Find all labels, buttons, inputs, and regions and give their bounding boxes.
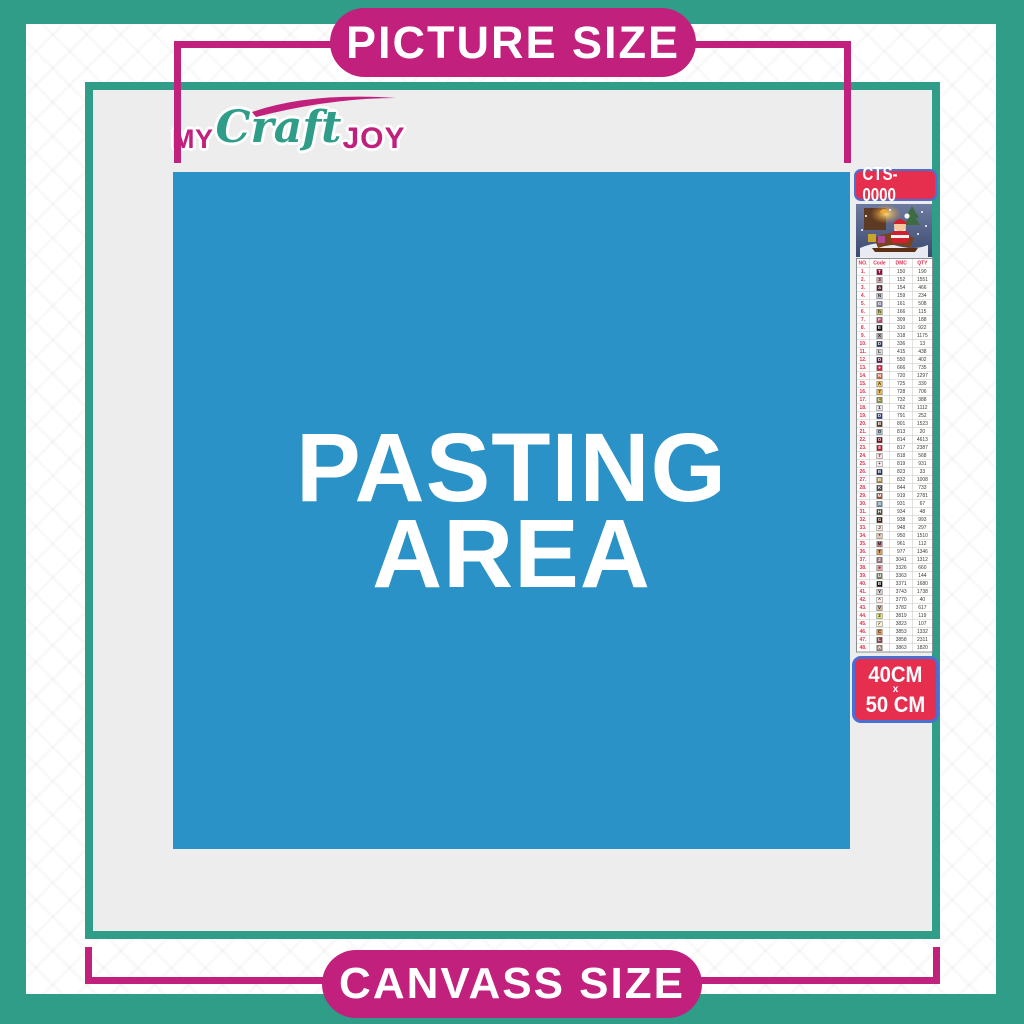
- qty-cell: 107: [913, 620, 932, 628]
- row-number: 5.: [857, 300, 869, 308]
- row-number: 37.: [857, 556, 869, 564]
- qty-cell: 112: [913, 540, 932, 548]
- row-number: 35.: [857, 540, 869, 548]
- dmc-cell: 166: [890, 308, 913, 316]
- qty-cell: 1112: [913, 404, 932, 412]
- dmc-cell: 3326: [890, 564, 913, 572]
- table-row: 20.B8011523: [857, 420, 932, 428]
- dmc-cell: 3363: [890, 572, 913, 580]
- header-qty: QTY: [913, 259, 932, 268]
- row-number: 40.: [857, 580, 869, 588]
- row-number: 27.: [857, 476, 869, 484]
- dmc-cell: 3853: [890, 628, 913, 636]
- code-cell: D: [869, 340, 890, 348]
- color-chip: T: [876, 269, 882, 275]
- table-row: 45.✓3823107: [857, 620, 932, 628]
- row-number: 3.: [857, 284, 869, 292]
- row-number: 9.: [857, 332, 869, 340]
- color-chip: A: [876, 381, 882, 387]
- header-no: NO.: [857, 259, 869, 268]
- color-chip: K: [876, 485, 882, 491]
- row-number: 38.: [857, 564, 869, 572]
- dmc-color-table: NO. Code DMC QTY 1.T1501902.315215513.a1…: [856, 258, 1010, 1024]
- color-chip: B: [876, 469, 882, 475]
- row-number: 21.: [857, 428, 869, 436]
- qty-cell: 297: [913, 524, 932, 532]
- table-row: 40.B33711680: [857, 580, 932, 588]
- color-chip: h: [876, 309, 882, 315]
- qty-cell: 735: [913, 364, 932, 372]
- table-row: 28.K844733: [857, 484, 932, 492]
- dmc-cell: 801: [890, 420, 913, 428]
- dmc-table-body: 1.T1501902.315215513.a1544664.N1592345.G…: [857, 268, 932, 652]
- color-chip: a: [876, 285, 882, 291]
- color-chip: J: [876, 525, 882, 531]
- table-row: 38.e3326660: [857, 564, 932, 572]
- dmc-cell: 791: [890, 412, 913, 420]
- color-chip: L: [876, 349, 882, 355]
- dmc-cell: 823: [890, 468, 913, 476]
- row-number: 30.: [857, 500, 869, 508]
- code-cell: A: [869, 380, 890, 388]
- qty-cell: 119: [913, 612, 932, 620]
- code-cell: F: [869, 316, 890, 324]
- row-number: 29.: [857, 492, 869, 500]
- dmc-cell: 318: [890, 332, 913, 340]
- code-cell: L: [869, 348, 890, 356]
- table-row: 2.31521551: [857, 276, 932, 284]
- color-chip: M: [876, 493, 882, 499]
- row-number: 13.: [857, 364, 869, 372]
- brand-logo: MYCraftJOY: [172, 94, 402, 170]
- table-row: 18.17621112: [857, 404, 932, 412]
- color-chip: D: [876, 341, 882, 347]
- code-cell: L: [869, 636, 890, 644]
- code-cell: T: [869, 548, 890, 556]
- dmc-cell: 150: [890, 268, 913, 276]
- color-chip: H: [876, 509, 882, 515]
- dmc-cell: 3041: [890, 556, 913, 564]
- row-number: 23.: [857, 444, 869, 452]
- code-cell: Y: [869, 588, 890, 596]
- code-cell: G: [869, 300, 890, 308]
- dmc-cell: 818: [890, 452, 913, 460]
- code-cell: X: [869, 332, 890, 340]
- row-number: 8.: [857, 324, 869, 332]
- dmc-cell: 3858: [890, 636, 913, 644]
- dmc-cell: 817: [890, 444, 913, 452]
- code-cell: N: [869, 292, 890, 300]
- top-tail-left: [174, 41, 181, 163]
- row-number: 11.: [857, 348, 869, 356]
- dmc-cell: 732: [890, 396, 913, 404]
- table-row: 11.L415438: [857, 348, 932, 356]
- row-number: 22.: [857, 436, 869, 444]
- dmc-cell: 415: [890, 348, 913, 356]
- code-cell: C: [869, 628, 890, 636]
- code-cell: D: [869, 412, 890, 420]
- table-row: 21.O81320: [857, 428, 932, 436]
- row-number: 47.: [857, 636, 869, 644]
- header-code: Code: [869, 259, 890, 268]
- qty-cell: 4613: [913, 436, 932, 444]
- qty-cell: 1008: [913, 476, 932, 484]
- dmc-cell: 3823: [890, 620, 913, 628]
- table-row: 26.B82333: [857, 468, 932, 476]
- dmc-cell: 161: [890, 300, 913, 308]
- color-chip: 8: [876, 445, 882, 451]
- table-row: 16.7728706: [857, 388, 932, 396]
- table-row: 31.H93448: [857, 508, 932, 516]
- bottom-tail-right: [933, 947, 940, 984]
- row-number: 26.: [857, 468, 869, 476]
- top-line-left: [174, 41, 334, 48]
- row-number: 17.: [857, 396, 869, 404]
- poster-canvas: PICTURE SIZE CANVASS SIZE MYCraftJOY PAS…: [0, 0, 1024, 1024]
- code-cell: 3: [869, 276, 890, 284]
- qty-cell: 252: [913, 412, 932, 420]
- top-line-right: [692, 41, 851, 48]
- canvass-size-banner: CANVASS SIZE: [322, 950, 702, 1018]
- color-chip: M: [876, 541, 882, 547]
- qty-cell: 1523: [913, 420, 932, 428]
- dmc-cell: 950: [890, 532, 913, 540]
- picture-size-banner: PICTURE SIZE: [330, 8, 696, 77]
- table-row: 17.L732388: [857, 396, 932, 404]
- row-number: 4.: [857, 292, 869, 300]
- qty-cell: 2781: [913, 492, 932, 500]
- row-number: 28.: [857, 484, 869, 492]
- qty-cell: 33: [913, 468, 932, 476]
- row-number: 10.: [857, 340, 869, 348]
- color-chip: E: [876, 325, 882, 331]
- table-row: 13.●666735: [857, 364, 932, 372]
- code-cell: B: [869, 420, 890, 428]
- table-row: 25.+819931: [857, 460, 932, 468]
- row-number: 1.: [857, 268, 869, 276]
- dmc-cell: 814: [890, 436, 913, 444]
- bottom-tail-left: [85, 947, 92, 984]
- dmc-cell: 931: [890, 500, 913, 508]
- color-chip: Y: [876, 589, 882, 595]
- dmc-cell: 310: [890, 324, 913, 332]
- row-number: 12.: [857, 356, 869, 364]
- row-number: 48.: [857, 644, 869, 652]
- row-number: 43.: [857, 604, 869, 612]
- color-chip: X: [876, 333, 882, 339]
- qty-cell: 115: [913, 308, 932, 316]
- color-chip: e: [876, 565, 882, 571]
- qty-cell: 1738: [913, 588, 932, 596]
- row-number: 16.: [857, 388, 869, 396]
- code-cell: +: [869, 460, 890, 468]
- dmc-cell: 3782: [890, 604, 913, 612]
- table-row: 14.N7201297: [857, 372, 932, 380]
- table-row: 39.U3363144: [857, 572, 932, 580]
- color-chip: V: [876, 605, 882, 611]
- code-cell: ●: [869, 364, 890, 372]
- color-chip: ^: [876, 597, 882, 603]
- table-row: 6.h166115: [857, 308, 932, 316]
- code-cell: M: [869, 540, 890, 548]
- code-cell: h: [869, 308, 890, 316]
- color-chip: D: [876, 413, 882, 419]
- qty-cell: 402: [913, 356, 932, 364]
- row-number: 36.: [857, 548, 869, 556]
- color-chip: B: [876, 421, 882, 427]
- table-row: 27.B8321008: [857, 476, 932, 484]
- dmc-cell: 720: [890, 372, 913, 380]
- row-number: 34.: [857, 532, 869, 540]
- color-chip: S: [876, 501, 882, 507]
- code-cell: 1: [869, 404, 890, 412]
- row-number: 39.: [857, 572, 869, 580]
- table-row: 29.M9192781: [857, 492, 932, 500]
- code-cell: U: [869, 572, 890, 580]
- row-number: 41.: [857, 588, 869, 596]
- qty-cell: 617: [913, 604, 932, 612]
- table-row: 7.F309188: [857, 316, 932, 324]
- code-cell: 8: [869, 444, 890, 452]
- table-row: 12.D550402: [857, 356, 932, 364]
- dmc-cell: 3743: [890, 588, 913, 596]
- row-number: 2.: [857, 276, 869, 284]
- row-number: 32.: [857, 516, 869, 524]
- color-chip: 3: [876, 277, 882, 283]
- size-line1: 40CM: [869, 665, 923, 685]
- code-cell: E: [869, 324, 890, 332]
- dmc-cell: 919: [890, 492, 913, 500]
- qty-cell: 40: [913, 596, 932, 604]
- dmc-cell: 152: [890, 276, 913, 284]
- product-thumbnail-santa-image: [856, 204, 932, 257]
- row-number: 14.: [857, 372, 869, 380]
- color-chip: 1: [876, 405, 882, 411]
- qty-cell: 1820: [913, 644, 932, 652]
- row-number: 19.: [857, 412, 869, 420]
- dmc-cell: 832: [890, 476, 913, 484]
- table-row: 35.M961112: [857, 540, 932, 548]
- code-cell: 2: [869, 612, 890, 620]
- qty-cell: 1175: [913, 332, 932, 340]
- color-chip: G: [876, 517, 882, 523]
- row-number: 7.: [857, 316, 869, 324]
- dmc-cell: 938: [890, 516, 913, 524]
- color-chip: *: [876, 533, 882, 539]
- dmc-cell: 813: [890, 428, 913, 436]
- table-row: 43.V3782617: [857, 604, 932, 612]
- qty-cell: 2311: [913, 636, 932, 644]
- color-chip: D: [876, 357, 882, 363]
- code-cell: 2: [869, 556, 890, 564]
- qty-cell: 20: [913, 428, 932, 436]
- qty-cell: 706: [913, 388, 932, 396]
- table-row: 42.^377040: [857, 596, 932, 604]
- color-chip: ●: [876, 365, 882, 371]
- table-row: 22.O8144613: [857, 436, 932, 444]
- qty-cell: 1510: [913, 532, 932, 540]
- dmc-cell: 725: [890, 380, 913, 388]
- qty-cell: 1680: [913, 580, 932, 588]
- table-row: 24.7818568: [857, 452, 932, 460]
- code-cell: B: [869, 476, 890, 484]
- bottom-line-right: [700, 977, 940, 984]
- code-cell: A: [869, 644, 890, 652]
- color-chip: 7: [876, 389, 882, 395]
- qty-cell: 67: [913, 500, 932, 508]
- qty-cell: 1551: [913, 276, 932, 284]
- qty-cell: 234: [913, 292, 932, 300]
- dmc-cell: 762: [890, 404, 913, 412]
- qty-cell: 922: [913, 324, 932, 332]
- table-row: 33.J948297: [857, 524, 932, 532]
- code-cell: ✓: [869, 620, 890, 628]
- qty-cell: 1332: [913, 628, 932, 636]
- table-row: 9.X3181175: [857, 332, 932, 340]
- color-chip: B: [876, 581, 882, 587]
- dmc-cell: 934: [890, 508, 913, 516]
- top-tail-right: [844, 41, 851, 163]
- table-row: 15.A725330: [857, 380, 932, 388]
- qty-cell: 438: [913, 348, 932, 356]
- color-chip: L: [876, 637, 882, 643]
- dmc-cell: 550: [890, 356, 913, 364]
- table-row: 41.Y37431738: [857, 588, 932, 596]
- row-number: 46.: [857, 628, 869, 636]
- color-chip: F: [876, 317, 882, 323]
- table-header-row: NO. Code DMC QTY: [857, 259, 932, 268]
- dmc-cell: 309: [890, 316, 913, 324]
- dmc-cell: 3770: [890, 596, 913, 604]
- code-cell: 7: [869, 388, 890, 396]
- row-number: 25.: [857, 460, 869, 468]
- code-cell: D: [869, 356, 890, 364]
- code-cell: T: [869, 268, 890, 276]
- table-row: 4.N159234: [857, 292, 932, 300]
- color-chip: O: [876, 429, 882, 435]
- code-cell: M: [869, 492, 890, 500]
- row-number: 45.: [857, 620, 869, 628]
- dmc-cell: 666: [890, 364, 913, 372]
- row-number: 20.: [857, 420, 869, 428]
- table-row: 32.G938993: [857, 516, 932, 524]
- table-row: 30.S93167: [857, 500, 932, 508]
- table-row: 37.230411312: [857, 556, 932, 564]
- row-number: 31.: [857, 508, 869, 516]
- qty-cell: 1297: [913, 372, 932, 380]
- color-chip: +: [876, 461, 882, 467]
- qty-cell: 330: [913, 380, 932, 388]
- color-chip: A: [876, 645, 882, 651]
- qty-cell: 993: [913, 516, 932, 524]
- dmc-cell: 154: [890, 284, 913, 292]
- qty-cell: 388: [913, 396, 932, 404]
- table-row: 23.88172387: [857, 444, 932, 452]
- code-cell: O: [869, 436, 890, 444]
- row-number: 44.: [857, 612, 869, 620]
- qty-cell: 508: [913, 300, 932, 308]
- color-chip: 7: [876, 453, 882, 459]
- qty-cell: 466: [913, 284, 932, 292]
- code-cell: e: [869, 564, 890, 572]
- pasting-area: PASTING AREA: [173, 172, 850, 849]
- qty-cell: 13: [913, 340, 932, 348]
- table-row: 5.G161508: [857, 300, 932, 308]
- pasting-area-line2: AREA: [372, 511, 651, 596]
- logo-joy: JOY: [342, 122, 405, 155]
- color-chip: ✓: [876, 621, 882, 627]
- code-cell: B: [869, 468, 890, 476]
- table-row: 1.T150190: [857, 268, 932, 276]
- canvas-size-badge: 40CM x 50 CM: [852, 656, 939, 723]
- color-chip: L: [876, 397, 882, 403]
- qty-cell: 1312: [913, 556, 932, 564]
- color-chip: T: [876, 549, 882, 555]
- color-chip: 2: [876, 557, 882, 563]
- qty-cell: 48: [913, 508, 932, 516]
- row-number: 18.: [857, 404, 869, 412]
- size-line2: 50 CM: [866, 695, 926, 715]
- code-cell: S: [869, 500, 890, 508]
- table-row: 10.D33613: [857, 340, 932, 348]
- dmc-cell: 3863: [890, 644, 913, 652]
- dmc-cell: 844: [890, 484, 913, 492]
- code-cell: G: [869, 516, 890, 524]
- color-chip: G: [876, 301, 882, 307]
- row-number: 15.: [857, 380, 869, 388]
- code-cell: B: [869, 580, 890, 588]
- row-number: 33.: [857, 524, 869, 532]
- color-chip: C: [876, 629, 882, 635]
- dmc-cell: 977: [890, 548, 913, 556]
- canvass-size-label: CANVASS SIZE: [339, 959, 685, 1009]
- code-cell: V: [869, 604, 890, 612]
- qty-cell: 2387: [913, 444, 932, 452]
- dmc-cell: 3371: [890, 580, 913, 588]
- dmc-cell: 961: [890, 540, 913, 548]
- dmc-cell: 948: [890, 524, 913, 532]
- dmc-cell: 159: [890, 292, 913, 300]
- color-chip: U: [876, 573, 882, 579]
- table-row: 19.D791252: [857, 412, 932, 420]
- table-row: 36.T9771346: [857, 548, 932, 556]
- dmc-cell: 336: [890, 340, 913, 348]
- table-row: 8.E310922: [857, 324, 932, 332]
- code-cell: ^: [869, 596, 890, 604]
- row-number: 6.: [857, 308, 869, 316]
- table-row: 47.L38582311: [857, 636, 932, 644]
- code-cell: 7: [869, 452, 890, 460]
- color-chip: N: [876, 293, 882, 299]
- code-cell: J: [869, 524, 890, 532]
- qty-cell: 568: [913, 452, 932, 460]
- code-cell: *: [869, 532, 890, 540]
- code-cell: L: [869, 396, 890, 404]
- code-cell: K: [869, 484, 890, 492]
- logo-swoosh-icon: [250, 90, 400, 120]
- qty-cell: 144: [913, 572, 932, 580]
- code-cell: O: [869, 428, 890, 436]
- product-code-badge: CTS-0000: [854, 169, 937, 201]
- color-chip: B: [876, 477, 882, 483]
- table-row: 34.*9501510: [857, 532, 932, 540]
- qty-cell: 1346: [913, 548, 932, 556]
- color-chip: 2: [876, 613, 882, 619]
- header-dmc: DMC: [890, 259, 913, 268]
- color-chip: O: [876, 437, 882, 443]
- row-number: 24.: [857, 452, 869, 460]
- dmc-cell: 728: [890, 388, 913, 396]
